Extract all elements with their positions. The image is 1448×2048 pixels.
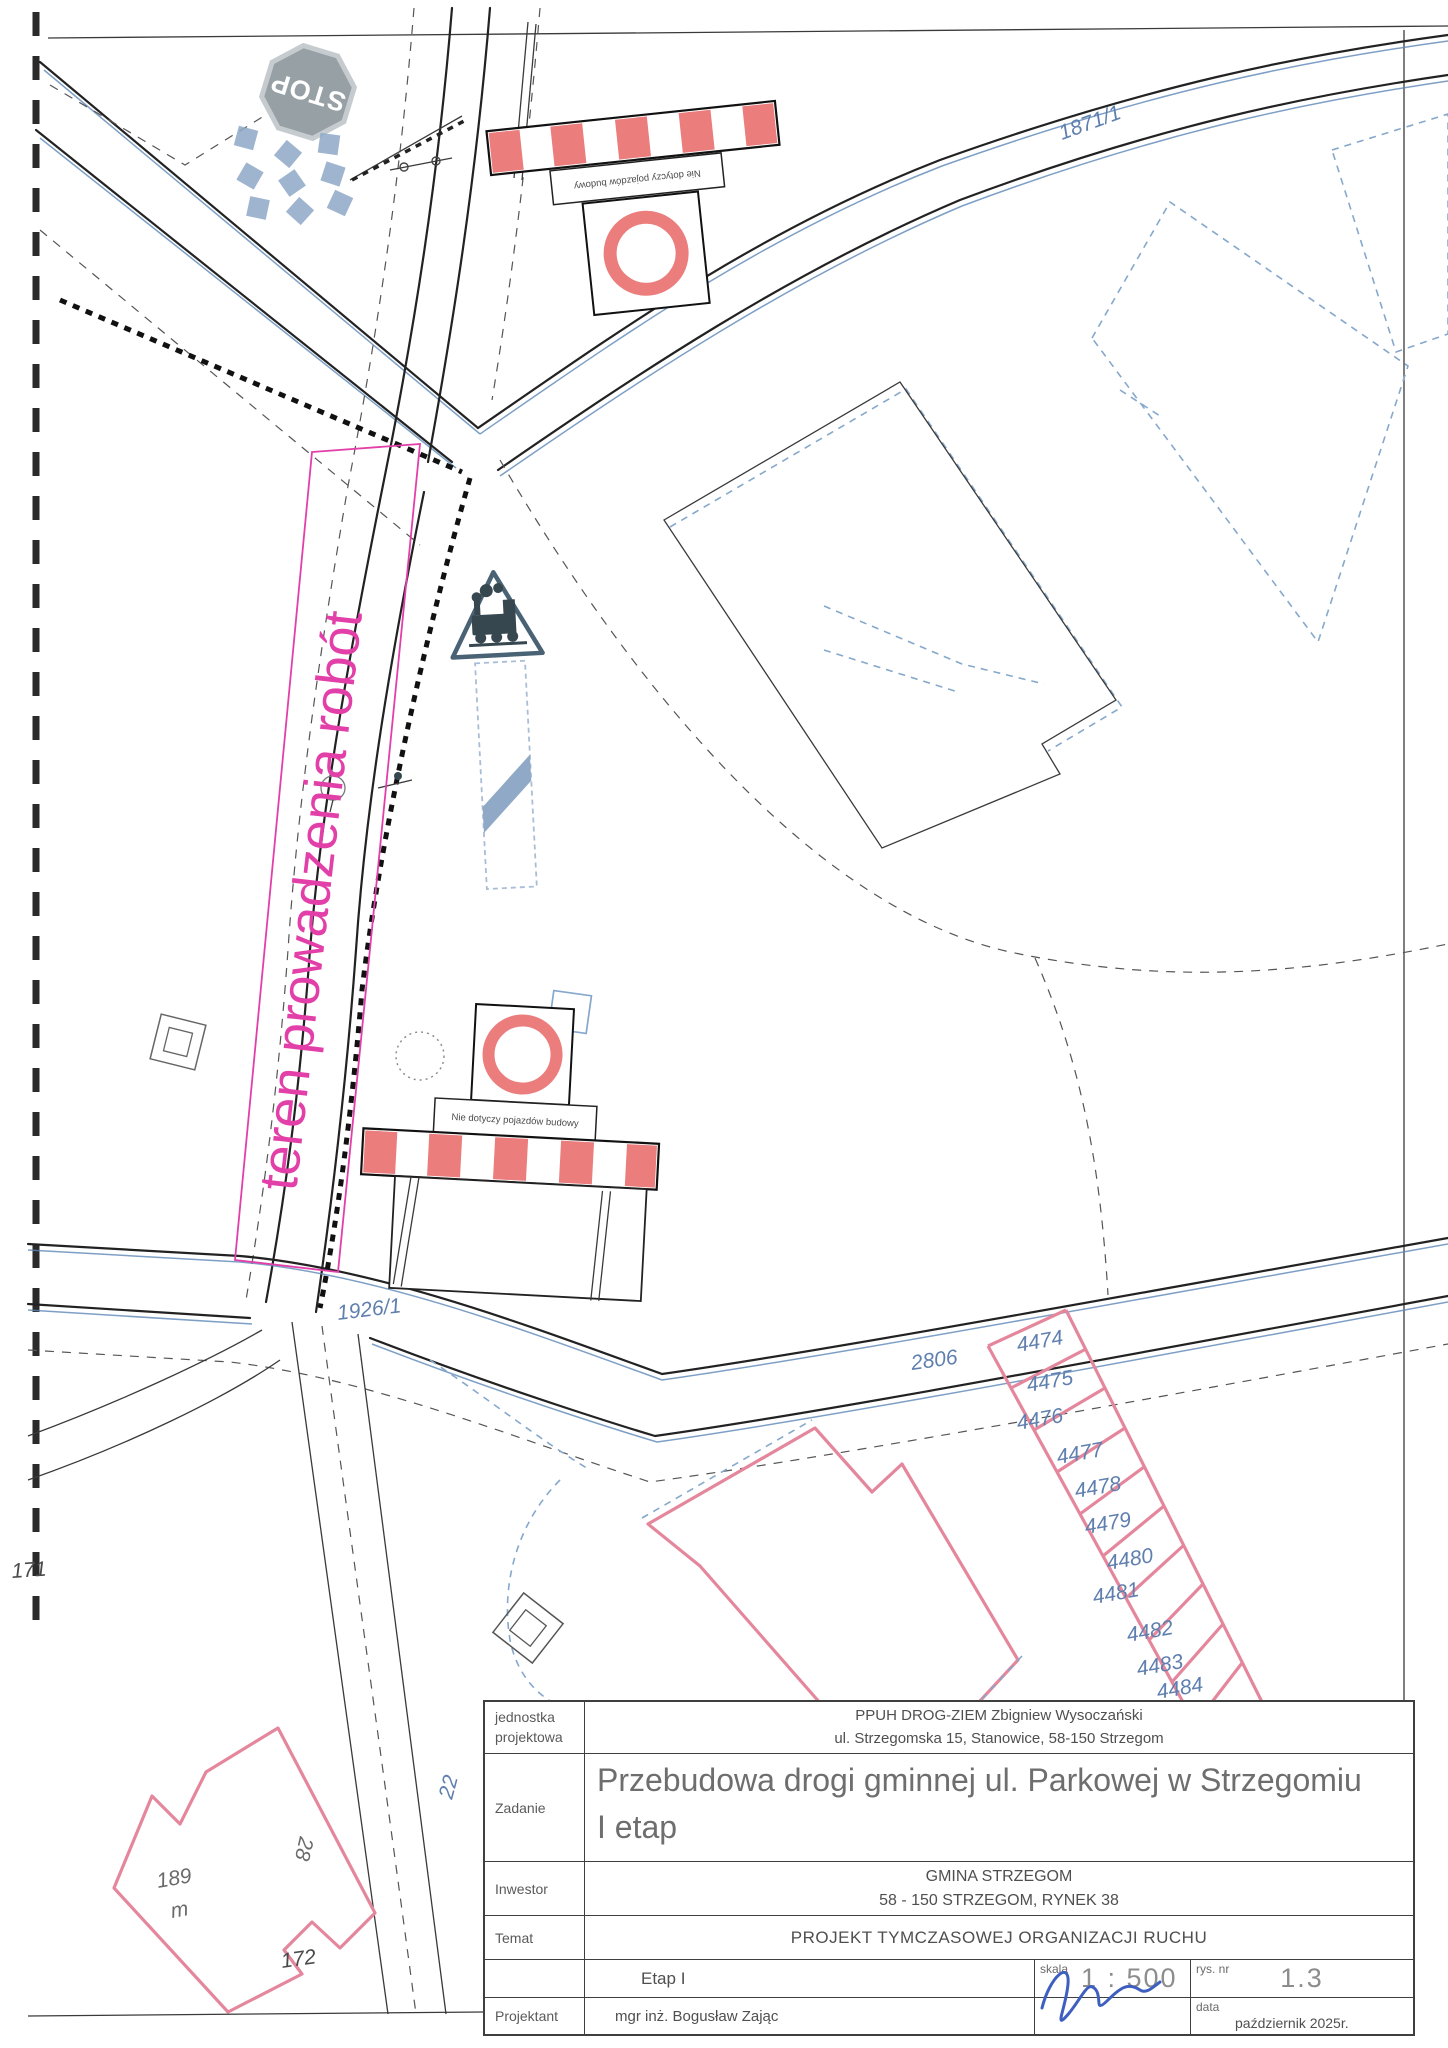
- title-block: jednostka projektowa PPUH DROG-ZIEM Zbig…: [483, 1700, 1415, 2036]
- survey-marker-2: [394, 772, 402, 780]
- task-cell: Przebudowa drogi gminnej ul. Parkowej w …: [585, 1754, 1413, 1862]
- strip-parcel-4482: 4482: [1125, 1616, 1175, 1647]
- stop-sign-group: STOP: [234, 38, 362, 225]
- date-label: data: [1196, 2000, 1219, 2014]
- barrier-top: Nie dotyczy pojazdów budowy: [486, 101, 795, 324]
- strip-parcel-4477: 4477: [1055, 1438, 1106, 1469]
- house-number-189: 189: [155, 1864, 194, 1893]
- site-plan-page: teren prowadzenia robót STOP: [0, 0, 1448, 2048]
- parcel-label-171: 171: [11, 1558, 48, 1583]
- road-lower-south-edge-east: [370, 1296, 1448, 1436]
- strip-parcel-4479: 4479: [1083, 1508, 1133, 1539]
- no-entry-sign-2: [487, 1019, 558, 1090]
- house-suffix-m: m: [169, 1897, 190, 1923]
- strip-parcel-4478: 4478: [1073, 1472, 1123, 1503]
- building-large-center: [664, 382, 1116, 848]
- barrier-middle: Nie dotyczy pojazdów budowy: [355, 998, 666, 1303]
- design-unit-name: PPUH DROG-ZIEM Zbigniew Wysoczański: [855, 1705, 1142, 1728]
- rail-cart-symbol: [390, 158, 452, 170]
- investor-name: GMINA STRZEGOM: [926, 1865, 1073, 1889]
- date-value: październik 2025r.: [1235, 2015, 1349, 2031]
- road-lower-north-edge: [28, 1238, 1448, 1374]
- investor-label: Inwestor: [485, 1862, 585, 1916]
- subject-cell: PROJEKT TYMCZASOWEJ ORGANIZACJI RUCHU: [585, 1916, 1413, 1960]
- road-lower-south-edge-west: [28, 1304, 250, 1318]
- building-pink-bottom-left: [114, 1728, 375, 2012]
- designer-name: mgr inż. Bogusław Zając: [585, 1998, 1035, 2034]
- parcel-label-road-lower: 1926/1: [336, 1294, 403, 1325]
- drawing-no-cell: rys. nr 1.3: [1191, 1960, 1413, 1998]
- investor-address: 58 - 150 STRZEGOM, RYNEK 38: [879, 1889, 1119, 1913]
- map-frame-top: [48, 26, 1448, 38]
- designer-signature: [1012, 1946, 1192, 2046]
- stage-cell: Etap I: [585, 1960, 1035, 1998]
- investor-cell: GMINA STRZEGOM 58 - 150 STRZEGOM, RYNEK …: [585, 1862, 1413, 1916]
- building-blue-dashed-right: [1092, 202, 1408, 642]
- parcel-label-2806: 2806: [909, 1346, 960, 1375]
- tree-circle: [396, 1032, 444, 1080]
- parcel-label-28: 28: [290, 1834, 318, 1863]
- task-stage: I etap: [597, 1809, 1413, 1846]
- parcel-label-22: 22: [434, 1772, 463, 1802]
- manhole-double-square: [150, 1014, 206, 1070]
- design-unit-cell: PPUH DROG-ZIEM Zbigniew Wysoczański ul. …: [585, 1702, 1413, 1754]
- parcel-label-172: 172: [279, 1945, 317, 1973]
- parcel-labels: 1871/1 1926/1 2806 171 22 189 m 28 172 4…: [11, 101, 1205, 1973]
- task-label: Zadanie: [485, 1754, 585, 1862]
- signature-stroke: [1042, 1972, 1160, 2020]
- manhole-double-square-2: [493, 1593, 563, 1663]
- drawing-no-label: rys. nr: [1196, 1962, 1229, 1976]
- map-frame-bottom: [28, 2012, 483, 2016]
- no-entry-sign: [607, 214, 686, 293]
- subject-label: Temat: [485, 1916, 585, 1960]
- paver-squares: [234, 126, 354, 225]
- design-unit-label: jednostka projektowa: [485, 1702, 585, 1754]
- road-topleft-north-edge: [40, 62, 478, 428]
- designer-label: Projektant: [485, 1998, 585, 2034]
- railway-warning-sign: [448, 570, 554, 890]
- task-title: Przebudowa drogi gminnej ul. Parkowej w …: [597, 1762, 1413, 1799]
- barrier-base-outline: [389, 1176, 647, 1301]
- drawing-no-value: 1.3: [1280, 1963, 1324, 1994]
- parcel-label-road-upper: 1871/1: [1056, 101, 1124, 145]
- strip-parcel-4481: 4481: [1091, 1578, 1141, 1609]
- lane-east-edge: [358, 1334, 446, 2014]
- building-blue-dashed-corner: [1332, 114, 1448, 352]
- date-cell: data październik 2025r.: [1191, 1998, 1413, 2034]
- strip-parcel-4475: 4475: [1025, 1366, 1075, 1397]
- building-pink-bottom-center: [648, 1428, 1018, 1744]
- row5-empty-label: [485, 1960, 585, 1998]
- design-unit-address: ul. Strzegomska 15, Stanowice, 58-150 St…: [834, 1728, 1163, 1751]
